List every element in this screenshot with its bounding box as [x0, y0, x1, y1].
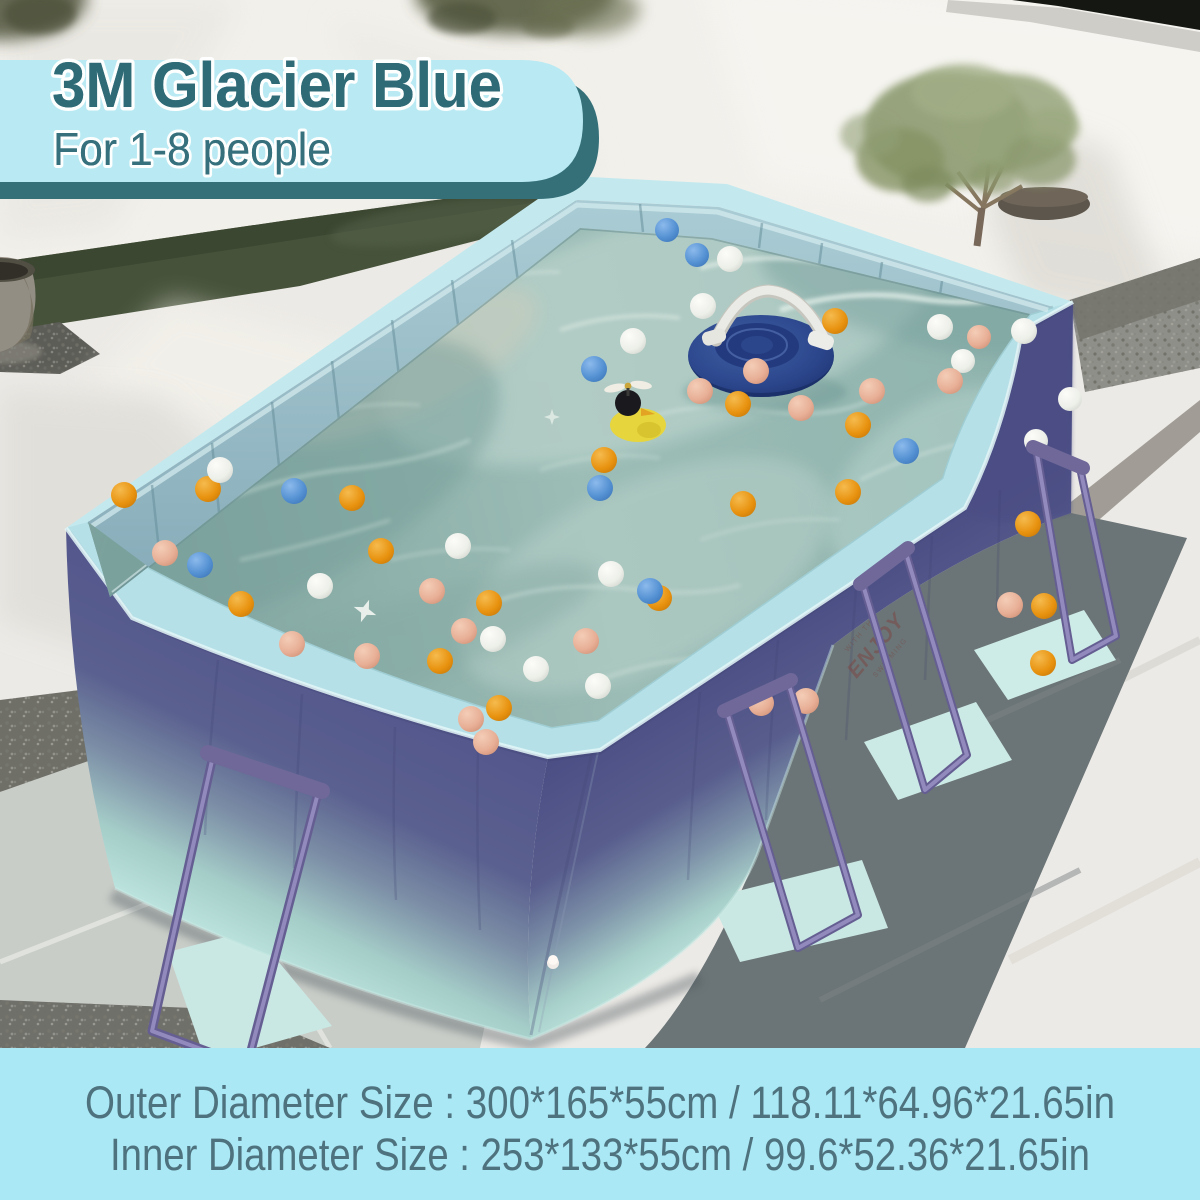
svg-text:For 1-8 people: For 1-8 people [53, 123, 331, 175]
svg-text:Inner Diameter Size : 253*133*: Inner Diameter Size : 253*133*55cm / 99.… [110, 1129, 1090, 1180]
svg-text:Outer Diameter Size : 300*165*: Outer Diameter Size : 300*165*55cm / 118… [85, 1077, 1115, 1128]
svg-text:3M Glacier Blue: 3M Glacier Blue [52, 49, 502, 121]
